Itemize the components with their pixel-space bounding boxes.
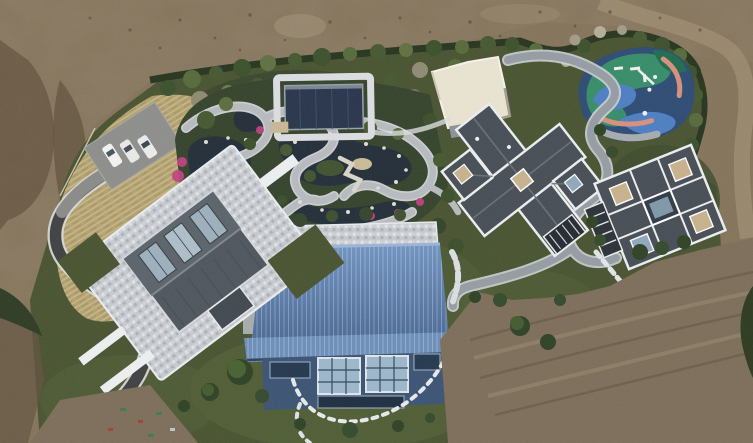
aerial-photo: Landscaped estate compound under constru…	[0, 0, 753, 443]
estate-scene: Landscaped estate compound under constru…	[0, 0, 753, 443]
photo-grain	[0, 0, 753, 443]
